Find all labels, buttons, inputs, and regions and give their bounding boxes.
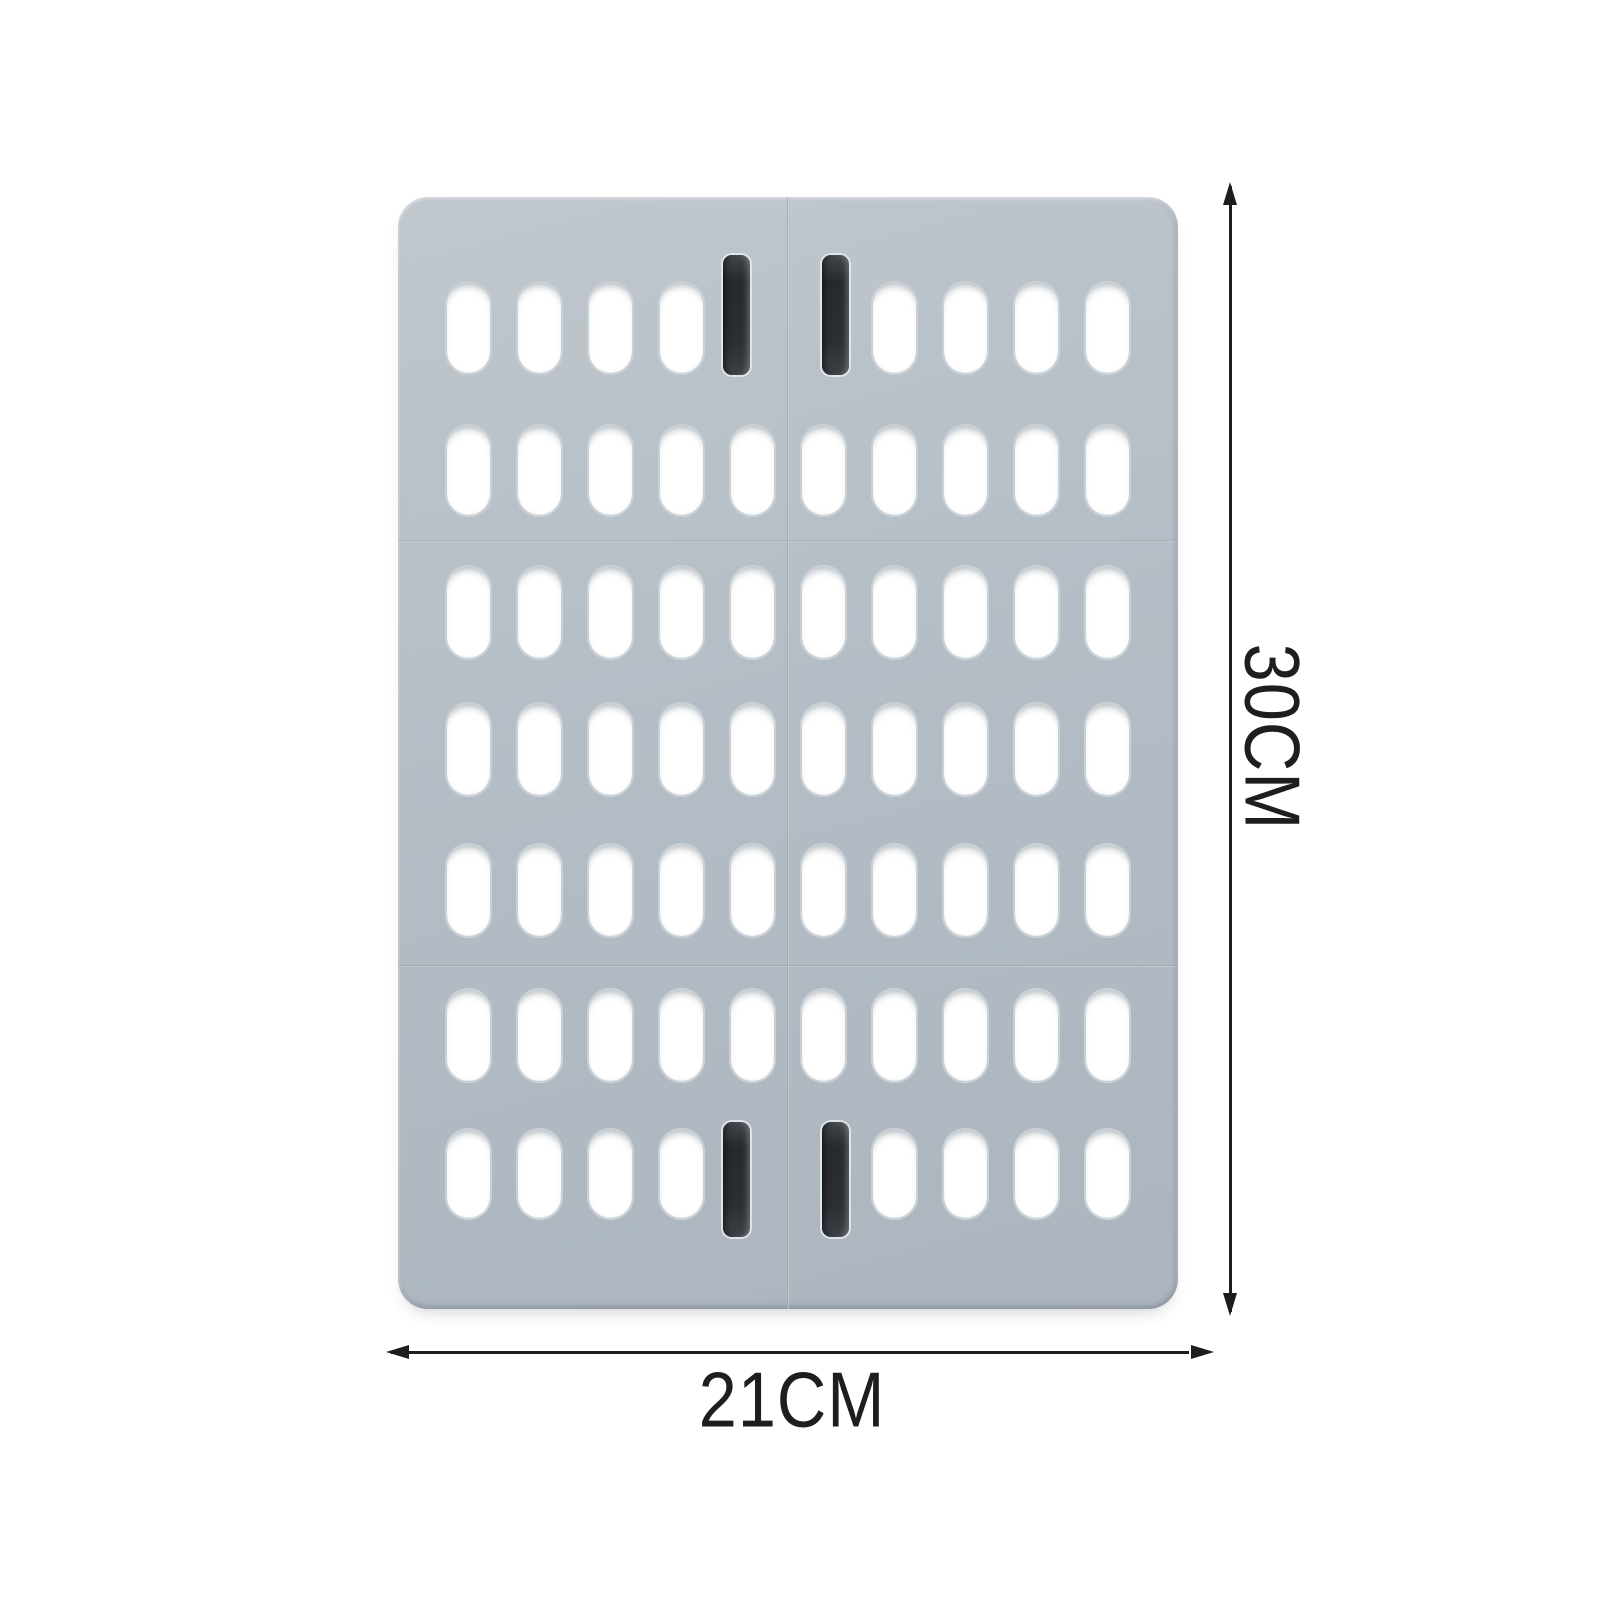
drain-slot: [658, 424, 705, 517]
drain-slot: [445, 702, 492, 797]
drain-slot: [871, 843, 918, 938]
drain-slot: [1013, 988, 1060, 1083]
arrow-right-icon: [1191, 1345, 1214, 1359]
drain-slot: [942, 1128, 989, 1220]
drain-slot: [1013, 1128, 1060, 1220]
drain-slot: [658, 1128, 705, 1220]
drain-slot: [587, 702, 634, 797]
drain-slot: [800, 702, 847, 797]
drain-slot: [1013, 565, 1060, 660]
drain-slot: [1084, 281, 1131, 375]
drain-slot: [445, 843, 492, 938]
arrow-up-icon: [1223, 182, 1237, 205]
drain-slot: [1084, 1128, 1131, 1220]
drain-slot: [445, 1128, 492, 1220]
drain-slot: [729, 565, 776, 660]
drain-slot: [1084, 702, 1131, 797]
drain-slot: [942, 424, 989, 517]
fold-handle-slot: [723, 1122, 750, 1237]
drain-slot: [871, 702, 918, 797]
width-label: 21CM: [699, 1355, 886, 1446]
drain-slot: [516, 702, 563, 797]
drain-slot: [587, 424, 634, 517]
product-image: 30CM 21CM: [0, 0, 1600, 1600]
fold-handle-slot: [822, 255, 849, 375]
drain-slot: [800, 843, 847, 938]
drain-board: [398, 197, 1178, 1309]
drain-slot: [1013, 702, 1060, 797]
drain-slot: [942, 565, 989, 660]
drain-slot: [445, 424, 492, 517]
drain-slot: [1084, 988, 1131, 1083]
drain-slot: [871, 565, 918, 660]
drain-slot: [1084, 843, 1131, 938]
height-label: 30CM: [1227, 644, 1318, 831]
drain-slot: [658, 843, 705, 938]
drain-slot: [445, 565, 492, 660]
drain-slot: [729, 702, 776, 797]
drain-slot: [516, 1128, 563, 1220]
drain-slot: [587, 281, 634, 375]
drain-slot: [800, 424, 847, 517]
drain-slot: [942, 988, 989, 1083]
fold-handle-slot: [822, 1122, 849, 1237]
drain-slot: [445, 988, 492, 1083]
drain-slot: [516, 565, 563, 660]
drain-slot: [1084, 565, 1131, 660]
drain-slot: [729, 843, 776, 938]
drain-slot: [516, 281, 563, 375]
drain-slot: [871, 281, 918, 375]
drain-slot: [516, 424, 563, 517]
drain-slot: [587, 988, 634, 1083]
drain-slot: [1013, 424, 1060, 517]
drain-slot: [587, 565, 634, 660]
drain-slot: [871, 424, 918, 517]
fold-seam-horizontal: [398, 965, 1178, 967]
drain-slot: [729, 424, 776, 517]
drain-slot: [587, 843, 634, 938]
drain-slot: [658, 565, 705, 660]
drain-slot: [658, 281, 705, 375]
drain-slot: [587, 1128, 634, 1220]
drain-slot: [658, 702, 705, 797]
drain-slot: [1084, 424, 1131, 517]
drain-slot: [942, 281, 989, 375]
drain-slot: [800, 988, 847, 1083]
drain-slot: [942, 843, 989, 938]
drain-slot: [516, 988, 563, 1083]
drain-slot: [729, 988, 776, 1083]
drain-slot: [1013, 843, 1060, 938]
arrow-down-icon: [1223, 1293, 1237, 1316]
drain-slot: [942, 702, 989, 797]
arrow-left-icon: [386, 1345, 409, 1359]
drain-slot: [658, 988, 705, 1083]
fold-handle-slot: [723, 255, 750, 375]
drain-slot: [871, 1128, 918, 1220]
drain-slot: [445, 281, 492, 375]
fold-seam-horizontal: [398, 540, 1178, 542]
drain-slot: [516, 843, 563, 938]
drain-slot: [1013, 281, 1060, 375]
fold-seam-vertical: [787, 197, 789, 1309]
drain-slot: [800, 565, 847, 660]
drain-slot: [871, 988, 918, 1083]
